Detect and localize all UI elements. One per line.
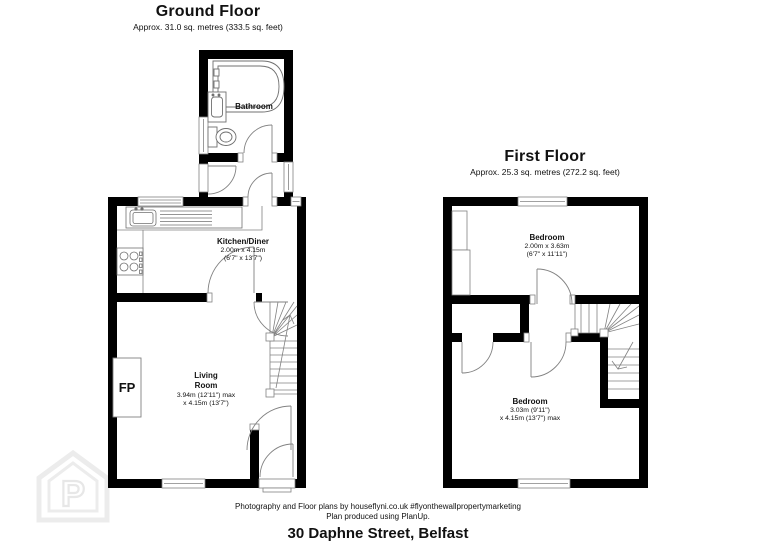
bedroom-front-dim-1: 2.00m x 3.63m bbox=[525, 244, 570, 251]
back-door bbox=[208, 166, 236, 194]
bathroom-door bbox=[244, 125, 272, 153]
ground-floor-plan bbox=[108, 50, 306, 492]
bedroom-front-window bbox=[518, 197, 567, 206]
floorplan-graphics: P bbox=[0, 0, 757, 550]
bedroom-front-dim-2: (6'7" x 11'11") bbox=[527, 252, 568, 259]
closet-door bbox=[462, 342, 493, 373]
kitchen-label: Kitchen/Diner bbox=[217, 238, 269, 246]
planup-watermark-logo: P bbox=[39, 453, 107, 520]
living-room-dim-1: 3.94m (12'11") max bbox=[177, 393, 235, 400]
back-door-threshold bbox=[199, 164, 208, 192]
bathroom-window bbox=[199, 117, 208, 154]
bathroom-label: Bathroom bbox=[235, 103, 273, 111]
ground-floor-windows bbox=[138, 117, 301, 488]
credit-line-2: Plan produced using PlanUp. bbox=[326, 513, 430, 521]
living-room-dim-2: x 4.15m (13'7") bbox=[183, 401, 229, 408]
ground-floor-area: Approx. 31.0 sq. metres (333.5 sq. feet) bbox=[133, 23, 283, 32]
bathroom-sink bbox=[208, 92, 226, 122]
first-floor-area: Approx. 25.3 sq. metres (272.2 sq. feet) bbox=[470, 168, 620, 177]
ground-floor-stairs bbox=[266, 302, 297, 397]
first-floor-title: First Floor bbox=[504, 149, 585, 165]
credit-line-1: Photography and Floor plans by houseflyn… bbox=[235, 503, 521, 511]
floorplan-page: P bbox=[0, 0, 757, 550]
bedroom-back-label: Bedroom bbox=[512, 398, 547, 406]
bedroom-back-dim-1: 3.03m (9'11") bbox=[510, 408, 550, 415]
toilet bbox=[208, 127, 236, 147]
kitchen-dim-metric: 2.00m x 4.15m bbox=[221, 248, 266, 255]
living-room-label-2: Room bbox=[195, 382, 218, 390]
ground-floor-title: Ground Floor bbox=[156, 4, 261, 20]
rear-junction-window bbox=[291, 197, 301, 206]
fireplace-label: FP bbox=[119, 381, 136, 394]
bedroom-back-window bbox=[518, 479, 570, 488]
kitchen-dim-imperial: (6'7" x 13'7") bbox=[224, 256, 262, 263]
watermark-letter: P bbox=[61, 473, 85, 514]
bedroom-back-dim-2: x 4.15m (13'7") max bbox=[500, 416, 560, 423]
living-room-window bbox=[162, 479, 205, 488]
first-floor-doors bbox=[462, 269, 572, 377]
living-room-label-1: Living bbox=[194, 372, 218, 380]
front-door bbox=[260, 444, 293, 477]
landing-window bbox=[284, 162, 293, 192]
front-door-threshold bbox=[259, 479, 295, 488]
hob bbox=[117, 248, 143, 275]
property-address: 30 Daphne Street, Belfast bbox=[288, 526, 469, 541]
kitchen-window bbox=[138, 197, 183, 206]
bedroom-front-wall-recess bbox=[452, 211, 470, 295]
ground-floor-door-jambs bbox=[207, 153, 277, 430]
landing-kitchen-door bbox=[248, 173, 272, 197]
first-floor-door-jambs bbox=[524, 295, 575, 342]
bedroom-back-door bbox=[531, 342, 566, 377]
bedroom-front-door bbox=[537, 269, 572, 304]
kitchen-sink-drainer bbox=[126, 207, 242, 228]
bedroom-front-label: Bedroom bbox=[529, 234, 564, 242]
